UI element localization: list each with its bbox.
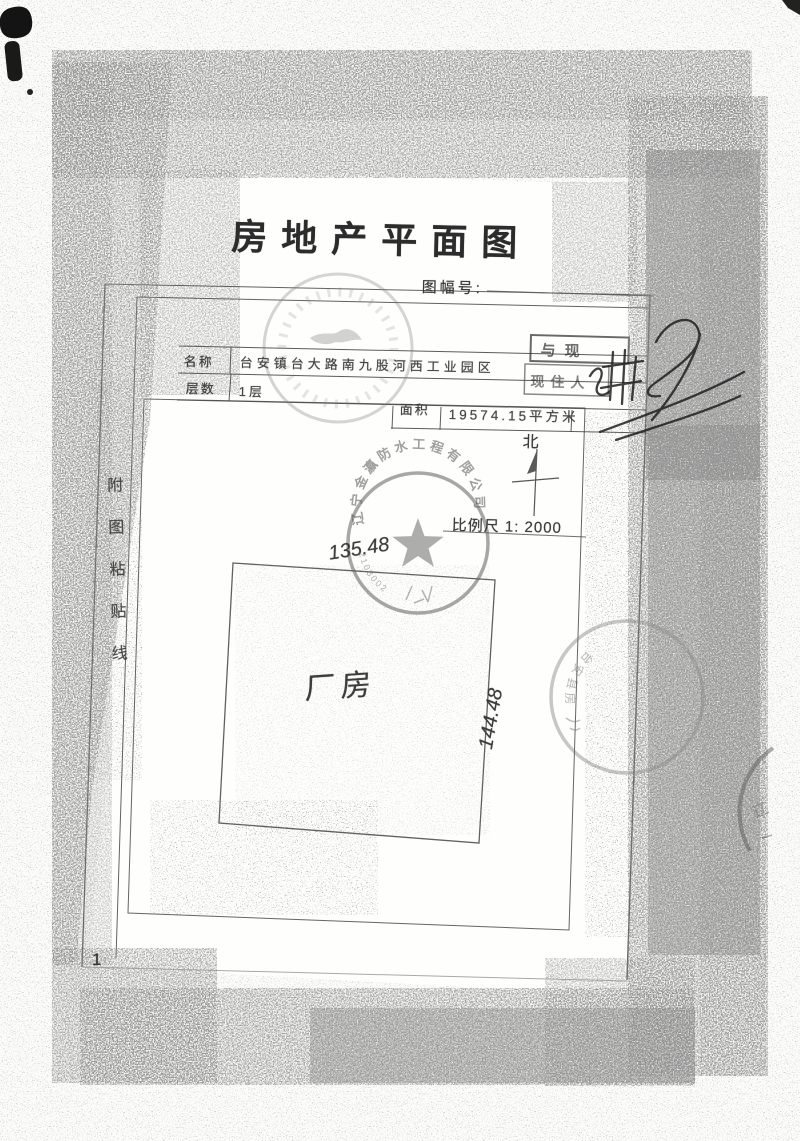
- sheet-number-label: 图幅号:: [422, 276, 484, 298]
- area-label-cell: 面积: [400, 399, 430, 419]
- floors-label-cell: 层数: [186, 378, 216, 398]
- name-label-cell: 名称: [184, 351, 214, 371]
- page-number: 1: [92, 950, 101, 970]
- page-title: 房地产平面图: [231, 208, 532, 267]
- scanned-document-page: 台安县房 辽宁金瀛防水工程有限公司 2103002 与现 现住人: [0, 0, 800, 1141]
- scale-label: 比例尺 1: 2000: [451, 514, 562, 538]
- review-stamp-line1: 与现: [540, 342, 588, 360]
- floors-value-cell: 1层: [239, 381, 266, 401]
- north-label: 北: [522, 428, 539, 452]
- building-label: 厂房: [304, 659, 377, 708]
- area-value-cell: 19574.15平方米: [449, 403, 579, 426]
- review-stamp-line2: 现住人: [530, 373, 590, 391]
- corner-mark-top-left-1: [0, 7, 32, 39]
